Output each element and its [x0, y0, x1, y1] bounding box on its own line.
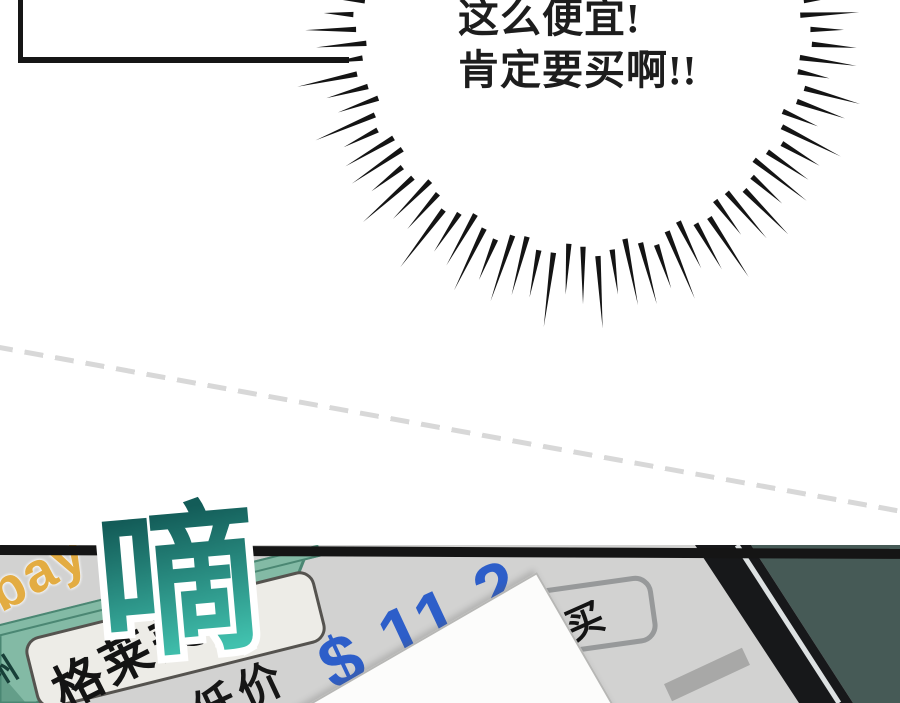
speech-line-2: 肯定要买啊!!: [458, 44, 798, 96]
sfx-text: 嘀 嘀: [90, 487, 327, 703]
sfx-fill: 嘀: [90, 492, 266, 676]
speech-text: 这么便宜! 肯定要买啊!!: [458, 0, 798, 97]
comic-page: 这么便宜! 肯定要买啊!! bay 州 格莱美 $ 11,2 低价 购买: [0, 0, 900, 703]
speech-line-1: 这么便宜!: [458, 0, 798, 44]
